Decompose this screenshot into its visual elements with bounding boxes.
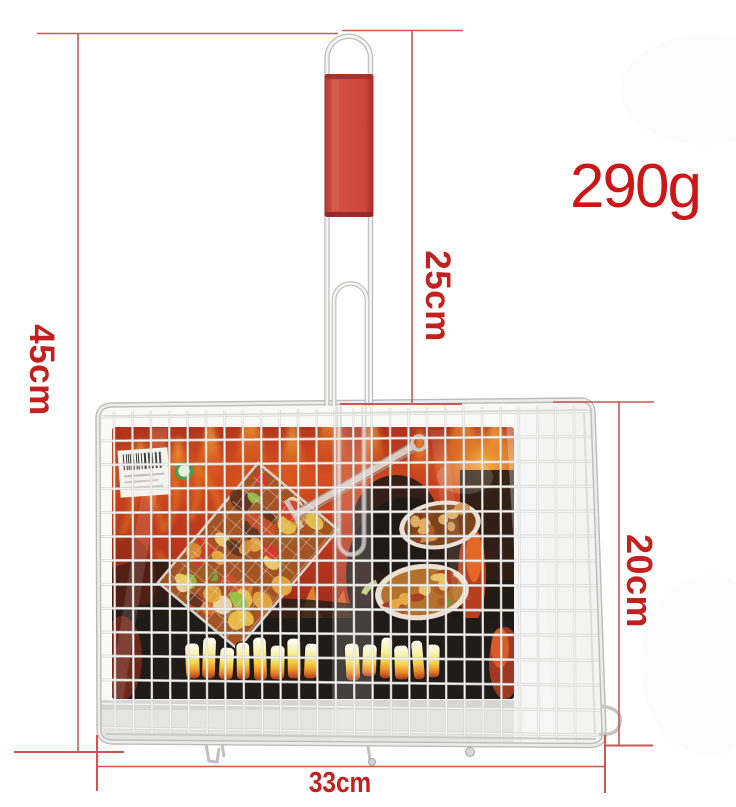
svg-text:25cm: 25cm (418, 250, 457, 342)
svg-text:290g: 290g (570, 152, 700, 221)
svg-text:33cm: 33cm (309, 766, 371, 798)
svg-text:20cm: 20cm (619, 534, 660, 628)
svg-text:45cm: 45cm (22, 324, 61, 416)
